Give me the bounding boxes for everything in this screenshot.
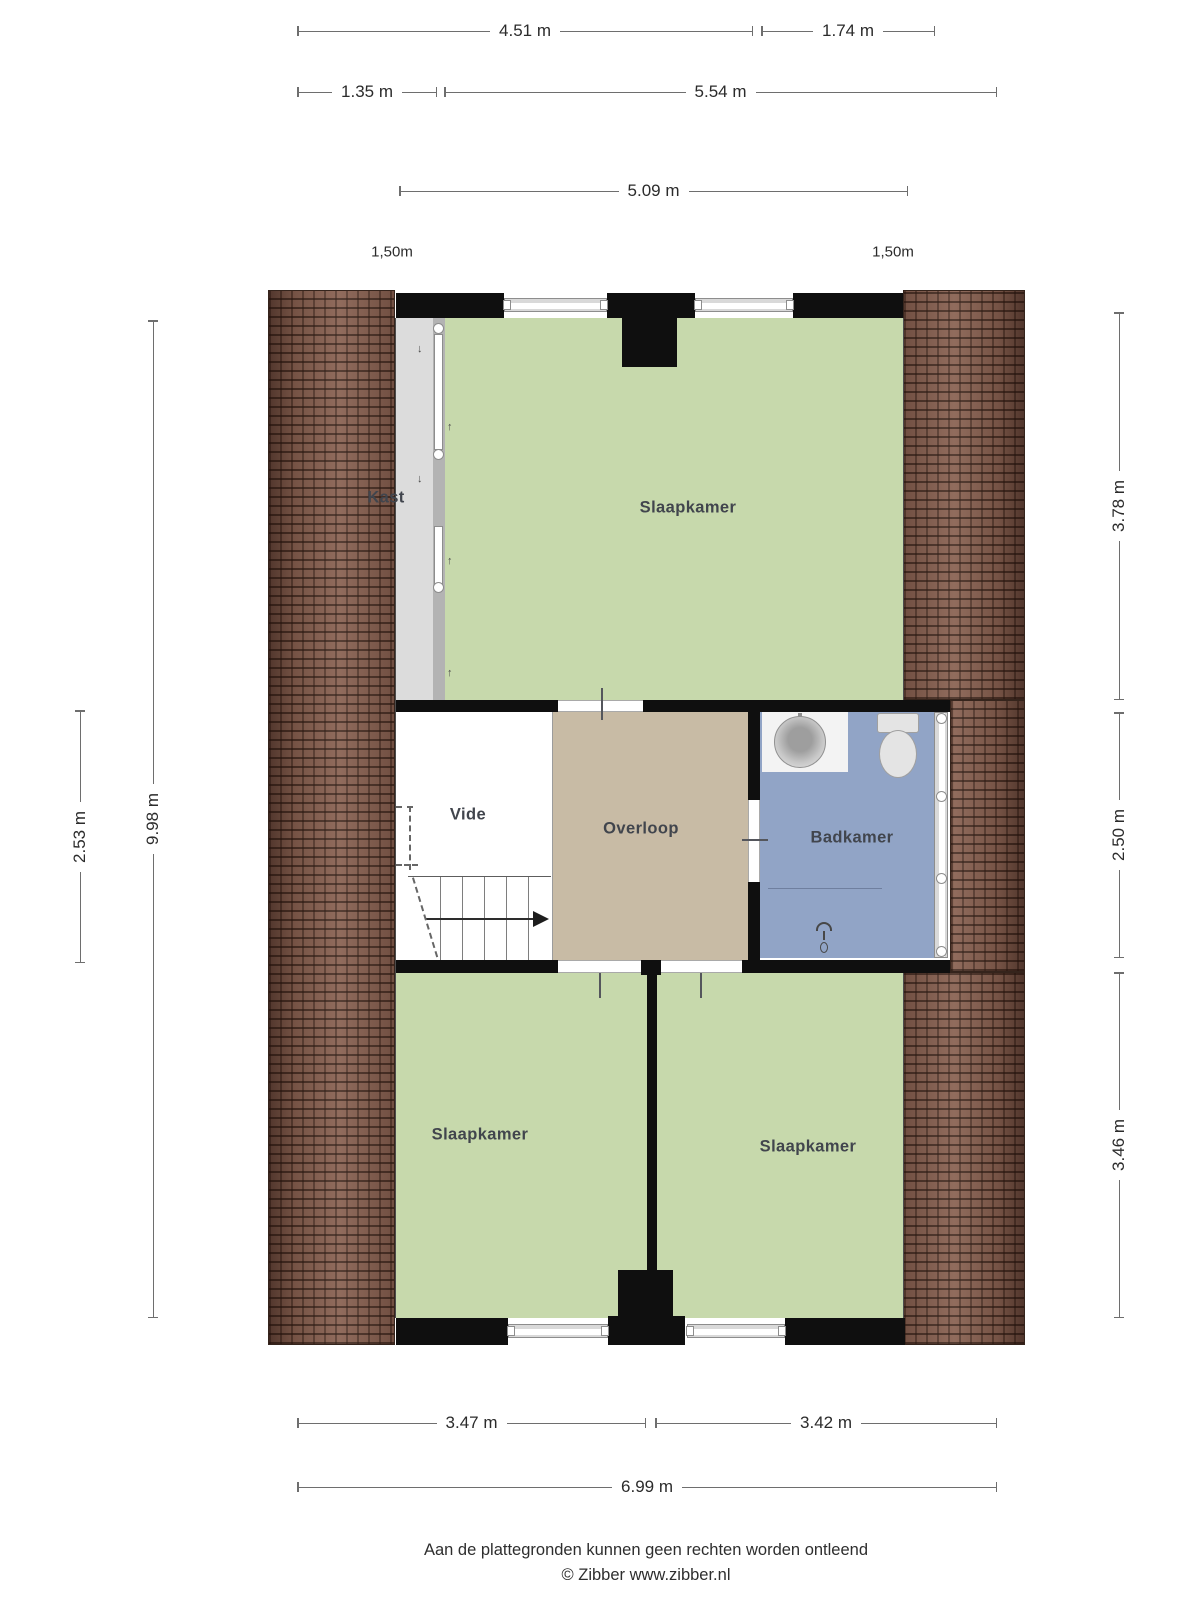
door-tick-slaapkamer-top bbox=[601, 688, 603, 720]
vide-dashed-line bbox=[396, 806, 413, 808]
dimension-left-2-53: 2.53 m bbox=[71, 710, 89, 963]
washbasin-bowl-icon bbox=[774, 716, 826, 768]
door-leaf-badkamer bbox=[742, 839, 768, 841]
dimension-label: 2.50 m bbox=[1109, 800, 1129, 870]
room-label-overloop: Overloop bbox=[603, 820, 679, 839]
chimney-top bbox=[622, 318, 677, 367]
wall-top-chimney-head bbox=[607, 293, 695, 318]
dimension-label: 6.99 m bbox=[612, 1477, 682, 1497]
door-opening-slaapkamer-right bbox=[661, 960, 742, 973]
dimension-top-1-35: 1.35 m bbox=[297, 82, 437, 102]
dimension-top-5-09: 5.09 m bbox=[399, 181, 908, 201]
window-bottom-left bbox=[508, 1324, 608, 1338]
window-bottom-right bbox=[687, 1324, 785, 1338]
door-tick-slaapkamer-right bbox=[700, 973, 702, 998]
dimension-label: 3.47 m bbox=[437, 1413, 507, 1433]
shower-head-icon bbox=[816, 922, 832, 931]
stairs-direction-line bbox=[425, 918, 535, 920]
dimension-top-4-51: 4.51 m bbox=[297, 21, 753, 41]
room-slaapkamer-left bbox=[396, 973, 647, 1318]
stairs-direction-arrow-icon bbox=[533, 911, 549, 927]
headroom-label-right: 1,50m bbox=[872, 244, 914, 261]
window-top-right bbox=[695, 298, 793, 312]
dimension-right-3-78: 3.78 m bbox=[1110, 312, 1128, 700]
shower-divider-line bbox=[768, 888, 882, 889]
room-label-vide: Vide bbox=[450, 806, 486, 825]
roof-slope-right-lower bbox=[903, 972, 1025, 1345]
dimension-label: 3.46 m bbox=[1109, 1110, 1129, 1180]
dimension-label: 5.54 m bbox=[686, 82, 756, 102]
sliding-door-panel bbox=[434, 526, 443, 586]
slope-arrow-icon: ↑ bbox=[447, 422, 453, 433]
wall-top-right bbox=[793, 293, 903, 318]
dimension-top-5-54: 5.54 m bbox=[444, 82, 997, 102]
room-label-slaapkamer-top: Slaapkamer bbox=[640, 499, 737, 518]
dimension-label: 4.51 m bbox=[490, 21, 560, 41]
door-opening-slaapkamer-left bbox=[558, 960, 641, 973]
vide-dashed-line bbox=[396, 864, 418, 866]
wall-top-left bbox=[396, 293, 504, 318]
sliding-door-panel bbox=[434, 334, 443, 450]
room-kast bbox=[395, 318, 433, 700]
slope-arrow-icon: ↑ bbox=[447, 556, 453, 567]
dimension-bottom-3-47: 3.47 m bbox=[297, 1413, 646, 1433]
slope-boundary-right-bottom bbox=[903, 973, 904, 1318]
wall-bottom-right bbox=[785, 1318, 905, 1345]
slope-boundary-left bbox=[395, 318, 396, 1318]
wall-mid-upper-left bbox=[396, 700, 558, 712]
door-opening-badkamer bbox=[748, 800, 760, 882]
slope-arrow-icon: ↓ bbox=[417, 344, 423, 355]
dimension-label: 3.78 m bbox=[1109, 471, 1129, 541]
shower-stem-icon bbox=[823, 931, 825, 940]
window-badkamer bbox=[934, 712, 948, 958]
slope-arrow-icon: ↑ bbox=[447, 668, 453, 679]
shower-drain-icon bbox=[820, 942, 828, 953]
washbasin-unit bbox=[762, 712, 848, 772]
dimension-label: 2.53 m bbox=[70, 802, 90, 872]
dimension-label: 3.42 m bbox=[791, 1413, 861, 1433]
dimension-label: 9.98 m bbox=[143, 784, 163, 854]
footer-disclaimer: Aan de plattegronden kunnen geen rechten… bbox=[424, 1541, 868, 1560]
wall-badkamer-left-lower bbox=[748, 882, 760, 960]
roof-slope-right-upper bbox=[903, 290, 1025, 700]
wall-mid-upper-right bbox=[643, 700, 950, 712]
roof-slope-left bbox=[268, 290, 395, 1345]
vide-overloop-divider-line bbox=[552, 712, 553, 960]
toilet-bowl-icon bbox=[879, 730, 917, 778]
dimension-top-1-74: 1.74 m bbox=[761, 21, 935, 41]
dimension-bottom-3-42: 3.42 m bbox=[655, 1413, 997, 1433]
slope-arrow-icon: ↓ bbox=[417, 474, 423, 485]
door-tick-slaapkamer-left bbox=[599, 973, 601, 998]
room-label-slaapkamer-right: Slaapkamer bbox=[760, 1138, 857, 1157]
dimension-label: 5.09 m bbox=[619, 181, 689, 201]
wall-center-vertical bbox=[647, 973, 657, 1272]
stairs-top-edge bbox=[408, 876, 551, 877]
dimension-bottom-6-99: 6.99 m bbox=[297, 1477, 997, 1497]
wall-mid-lower-right bbox=[742, 960, 950, 973]
footer-credit: © Zibber www.zibber.nl bbox=[562, 1566, 731, 1585]
room-label-kast: Kast bbox=[367, 489, 404, 508]
wall-bottom-left bbox=[396, 1318, 508, 1345]
chimney-bottom-base bbox=[608, 1316, 685, 1345]
dimension-right-2-50: 2.50 m bbox=[1110, 712, 1128, 958]
dimension-left-9-98: 9.98 m bbox=[144, 320, 162, 1318]
room-label-badkamer: Badkamer bbox=[811, 829, 894, 848]
dimension-label: 1.35 m bbox=[332, 82, 402, 102]
kast-partition bbox=[433, 318, 445, 700]
headroom-label-left: 1,50m bbox=[371, 244, 413, 261]
slope-boundary-right-top bbox=[903, 318, 904, 700]
wall-mid-lower-left bbox=[396, 960, 558, 973]
vide-dashed-line bbox=[409, 806, 411, 870]
dimension-right-3-46: 3.46 m bbox=[1110, 972, 1128, 1318]
dimension-label: 1.74 m bbox=[813, 21, 883, 41]
wall-badkamer-left-upper bbox=[748, 712, 760, 800]
window-top-left bbox=[504, 298, 607, 312]
room-label-slaapkamer-left: Slaapkamer bbox=[432, 1126, 529, 1145]
roof-slope-right-notch bbox=[950, 700, 1025, 972]
floorplan-page: 4.51 m 1.74 m 1.35 m 5.54 m 5.09 m 1,50m… bbox=[0, 0, 1200, 1600]
